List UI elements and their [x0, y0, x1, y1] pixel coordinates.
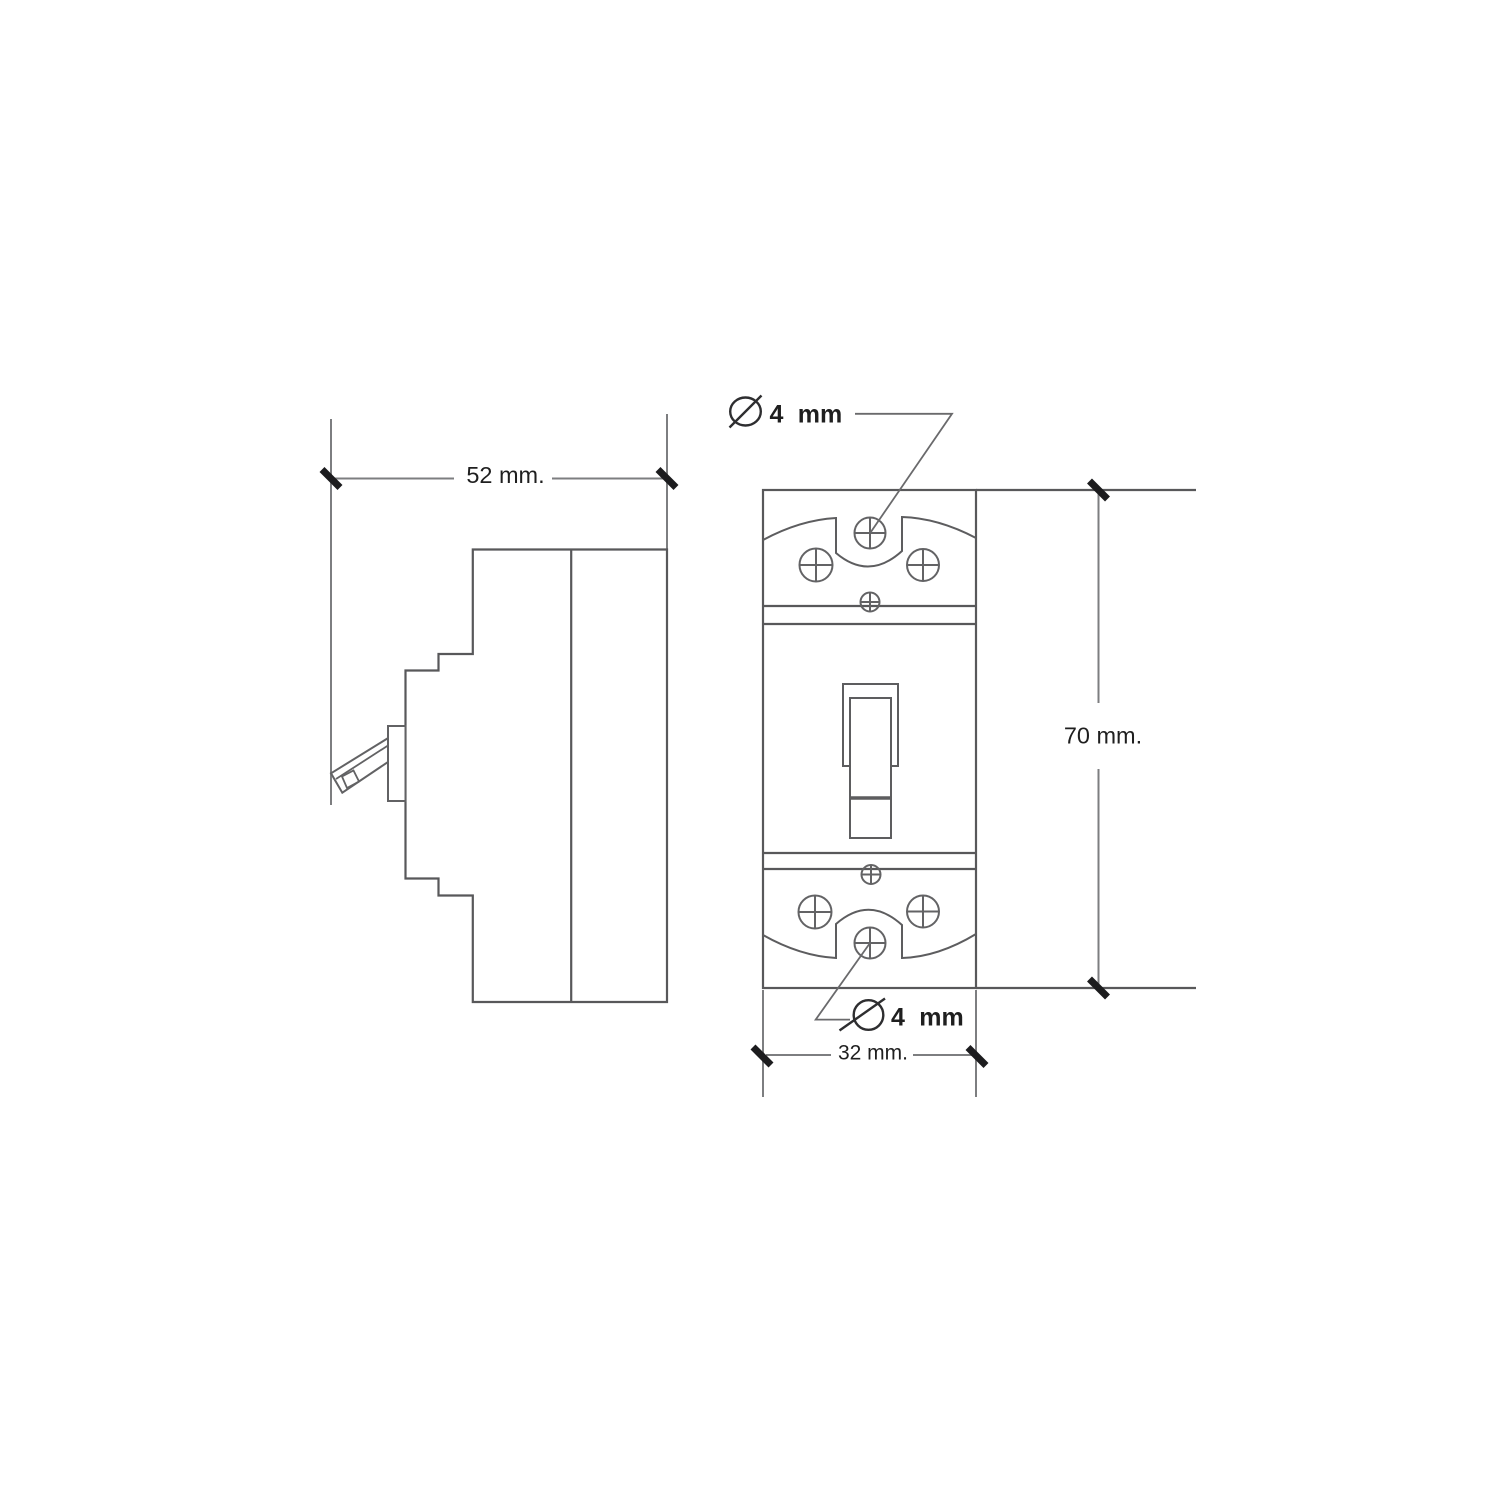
svg-text:mm: mm: [919, 1004, 963, 1032]
svg-text:32 mm.: 32 mm.: [838, 1042, 908, 1065]
svg-text:52 mm.: 52 mm.: [466, 462, 544, 488]
svg-text:4: 4: [770, 401, 784, 429]
svg-text:70 mm.: 70 mm.: [1064, 723, 1142, 749]
svg-text:4: 4: [891, 1004, 905, 1032]
svg-text:mm: mm: [798, 401, 842, 429]
